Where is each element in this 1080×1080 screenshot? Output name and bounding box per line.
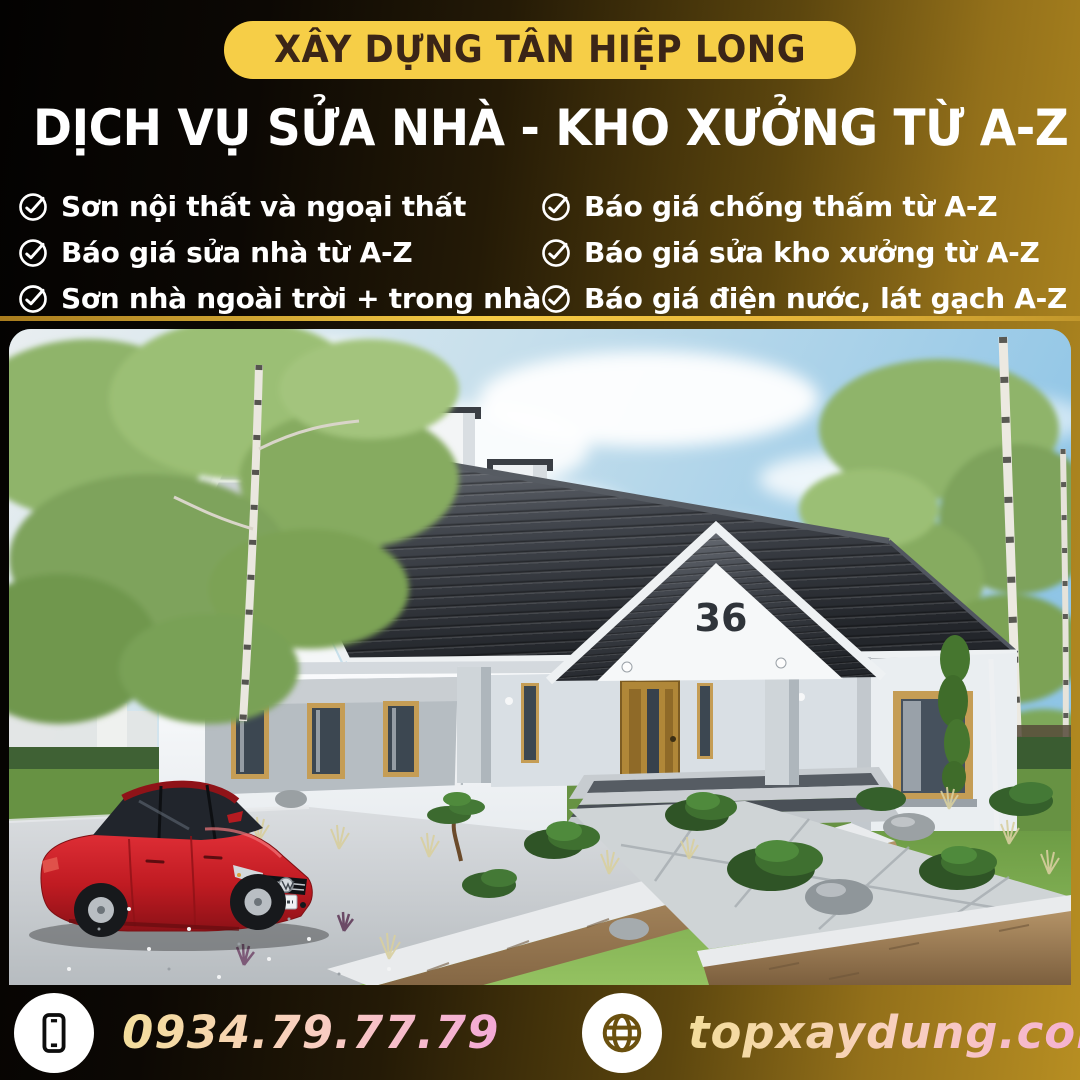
check-circle-icon [541,192,571,222]
globe-icon [582,993,662,1073]
service-item: Báo giá sửa kho xưởng từ A-Z [541,236,1072,269]
service-label: Báo giá điện nước, lát gạch A-Z [584,282,1067,315]
service-label: Báo giá sửa kho xưởng từ A-Z [584,236,1040,269]
brand-badge: XÂY DỰNG TÂN HIỆP LONG [224,21,856,79]
house-number: 36 [695,596,748,640]
check-circle-icon [18,192,48,222]
phone-contact: 0934.79.77.79 [0,993,554,1073]
service-label: Báo giá chống thấm từ A-Z [584,190,997,223]
smartphone-icon [14,993,94,1073]
service-label: Sơn nội thất và ngoại thất [61,190,466,223]
service-label: Báo giá sửa nhà từ A-Z [61,236,412,269]
gold-divider [0,316,1080,321]
website-contact: topxaydung.com [554,993,1080,1073]
check-circle-icon [541,238,571,268]
page-title: DỊCH VỤ SỬA NHÀ - KHO XƯỞNG TỪ A-Z [0,99,1080,157]
service-item: Báo giá điện nước, lát gạch A-Z [541,282,1072,315]
services-column-right: Báo giá chống thấm từ A-Z Báo giá sửa kh… [541,190,1072,315]
check-circle-icon [18,284,48,314]
services-list: Sơn nội thất và ngoại thất Báo giá sửa n… [18,190,1072,315]
website-link[interactable]: topxaydung.com [688,1006,1080,1059]
services-column-left: Sơn nội thất và ngoại thất Báo giá sửa n… [18,190,541,315]
page-title-text: DỊCH VỤ SỬA NHÀ - KHO XƯỞNG TỪ A-Z [33,99,1068,157]
service-label: Sơn nhà ngoài trời + trong nhà [61,282,541,315]
house-photo: 36 [9,329,1071,985]
check-circle-icon [18,238,48,268]
service-item: Báo giá chống thấm từ A-Z [541,190,1072,223]
brand-badge-label: XÂY DỰNG TÂN HIỆP LONG [274,21,806,79]
service-item: Báo giá sửa nhà từ A-Z [18,236,541,269]
construction-ad-poster: XÂY DỰNG TÂN HIỆP LONG DỊCH VỤ SỬA NHÀ -… [0,0,1080,1080]
service-item: Sơn nhà ngoài trời + trong nhà [18,282,541,315]
contact-bar: 0934.79.77.79 topxaydung.com [0,985,1080,1080]
phone-number[interactable]: 0934.79.77.79 [122,1006,499,1059]
house-photo-scene: 36 [9,329,1071,985]
check-circle-icon [541,284,571,314]
service-item: Sơn nội thất và ngoại thất [18,190,541,223]
